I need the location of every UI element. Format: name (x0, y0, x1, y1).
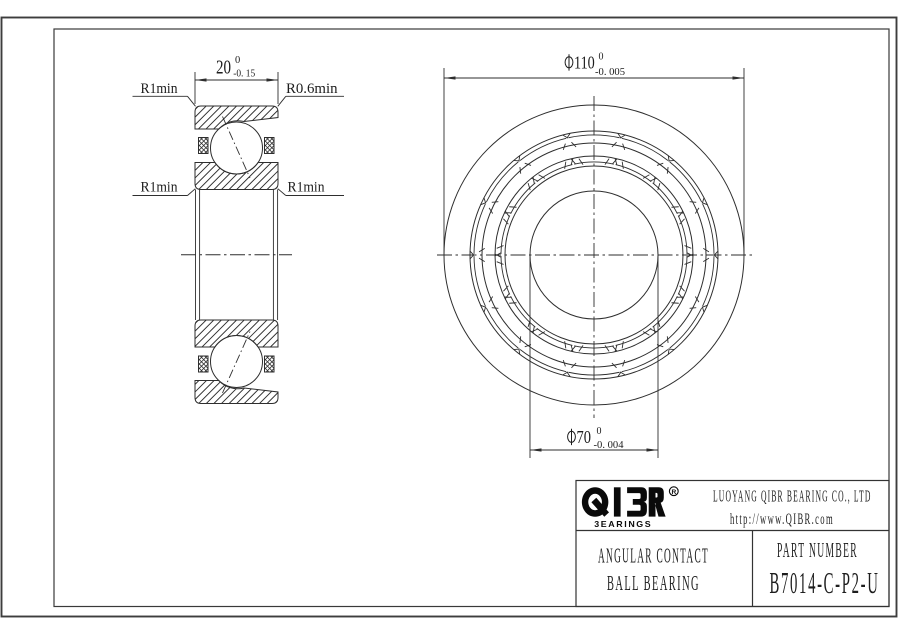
svg-text:3EARINGS: 3EARINGS (594, 519, 652, 529)
svg-text:0: 0 (235, 55, 240, 66)
svg-text:70: 70 (577, 427, 592, 447)
svg-text:-0. 005: -0. 005 (595, 67, 625, 78)
svg-text:R1min: R1min (141, 180, 178, 196)
svg-text:ANGULAR CONTACT: ANGULAR CONTACT (598, 543, 709, 567)
svg-text:LUOYANG QIBR BEARING CO., LTD: LUOYANG QIBR BEARING CO., LTD (713, 487, 872, 506)
svg-text:-0. 004: -0. 004 (594, 440, 624, 451)
svg-text:20: 20 (216, 57, 231, 79)
svg-text:B7014-C-P2-U: B7014-C-P2-U (770, 565, 880, 600)
svg-text:R: R (672, 489, 677, 496)
svg-text:0: 0 (597, 426, 602, 437)
svg-text:BALL BEARING: BALL BEARING (607, 571, 700, 595)
svg-text:http://www.QIBR.com: http://www.QIBR.com (730, 511, 834, 528)
svg-text:0: 0 (599, 52, 604, 63)
svg-text:R0.6min: R0.6min (286, 81, 338, 97)
svg-text:R1min: R1min (141, 81, 178, 97)
svg-text:110: 110 (574, 53, 595, 73)
svg-text:R1min: R1min (288, 180, 325, 196)
svg-text:PART NUMBER: PART NUMBER (777, 538, 858, 562)
svg-text:-0. 15: -0. 15 (233, 69, 255, 80)
